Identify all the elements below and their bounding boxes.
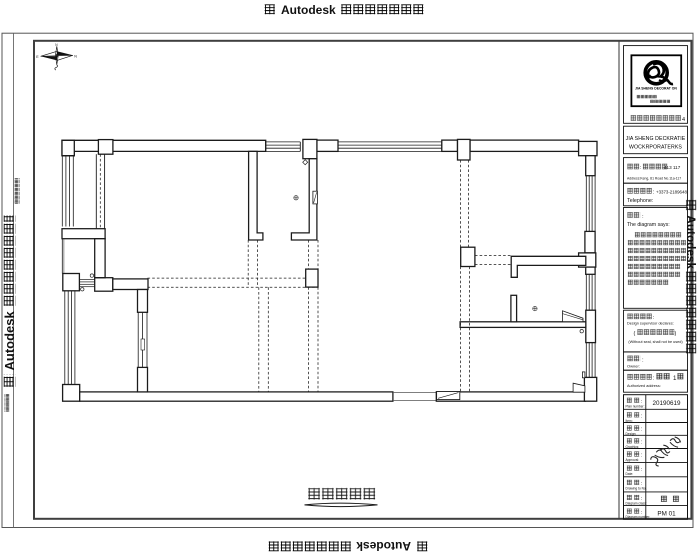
svg-text::: : <box>641 440 642 446</box>
svg-text:20190619: 20190619 <box>652 400 681 407</box>
svg-text:Plan number:: Plan number: <box>626 404 645 408</box>
svg-text:N: N <box>74 55 77 59</box>
svg-text:The diagram says:: The diagram says: <box>627 222 670 228</box>
svg-text:1: 1 <box>673 375 677 382</box>
svg-text:JIA SHENG DECKRATIE: JIA SHENG DECKRATIE <box>626 136 686 142</box>
svg-text:PM 01: PM 01 <box>657 510 676 517</box>
svg-text:Autodesk: Autodesk <box>281 3 336 17</box>
svg-text:+3373-2189648: +3373-2189648 <box>656 190 687 195</box>
svg-text::: : <box>641 453 642 459</box>
svg-text::: : <box>641 427 642 433</box>
svg-text:Diagram class:: Diagram class: <box>626 502 647 506</box>
svg-text:Diagram number:: Diagram number: <box>626 515 651 519</box>
svg-text:JIA SHENG DECORAT ON: JIA SHENG DECORAT ON <box>635 87 677 91</box>
svg-text:Graphics:: Graphics: <box>626 445 640 449</box>
svg-text:Telephone:: Telephone: <box>627 198 653 204</box>
svg-text:(: ( <box>634 331 636 337</box>
svg-text:Item:: Item: <box>626 419 633 423</box>
svg-text:413 117: 413 117 <box>664 165 681 170</box>
svg-text:Autodesk: Autodesk <box>2 311 17 371</box>
svg-text:): ) <box>675 331 677 337</box>
svg-text:Autodesk: Autodesk <box>356 539 411 553</box>
svg-text::: : <box>641 467 642 473</box>
svg-text:Date:: Date: <box>626 472 634 476</box>
svg-text:Authorized address:: Authorized address: <box>627 384 661 388</box>
svg-text:Design supervisor declares:: Design supervisor declares: <box>627 321 674 325</box>
svg-text:Address:Keng, 81 Road No.11a-1: Address:Keng, 81 Road No.11a-117 <box>627 176 681 180</box>
svg-text::: : <box>641 414 642 420</box>
svg-text:4: 4 <box>682 117 685 123</box>
svg-text:Drawing to No.: Drawing to No. <box>626 486 647 490</box>
svg-text:Design:: Design: <box>626 432 637 436</box>
svg-text:Approval:: Approval: <box>626 458 640 462</box>
svg-text:(Without seal, shall not be us: (Without seal, shall not be used) <box>628 340 683 344</box>
svg-text:WOCKRPORATERKS: WOCKRPORATERKS <box>629 145 682 151</box>
svg-text:Owner:: Owner: <box>627 363 640 368</box>
